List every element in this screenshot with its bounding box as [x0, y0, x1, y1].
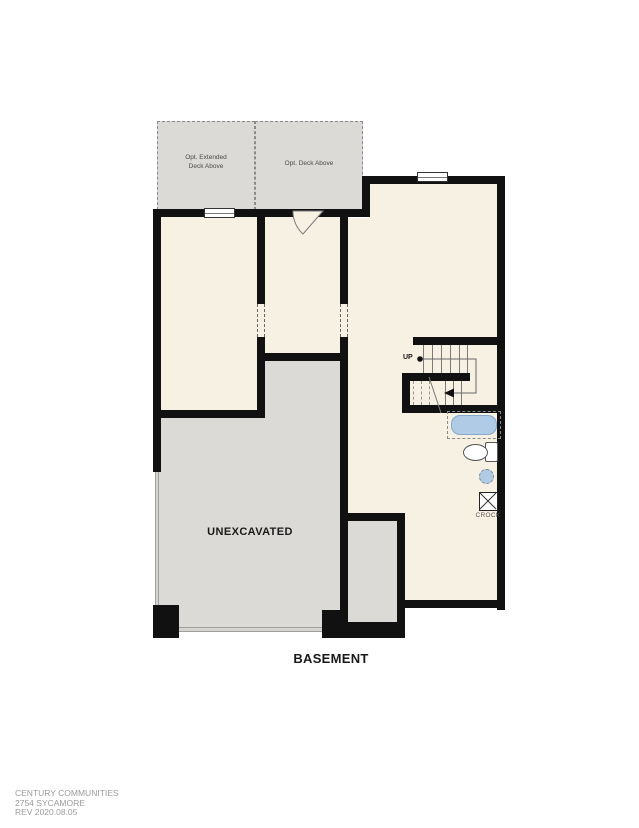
wall: [153, 209, 370, 217]
tub-fixture: [451, 415, 497, 435]
stair-tread: [432, 345, 433, 373]
stair-tread-dashed: [429, 381, 430, 405]
window-symbol: [204, 208, 235, 218]
wall: [497, 176, 505, 610]
footer-revision: REV 2020.08.05: [15, 808, 119, 818]
basement-room-top: [368, 183, 498, 219]
stair-tread: [423, 345, 424, 373]
basement-room-lower: [404, 520, 497, 601]
wall: [153, 605, 179, 638]
deck-extended-label-line2: Deck Above: [189, 163, 224, 170]
wall-opening: [257, 304, 265, 337]
foundation-line-left: [155, 472, 159, 605]
stair-tread: [441, 345, 442, 373]
sink-rough-in-fixture: [479, 469, 494, 484]
wall: [400, 600, 505, 608]
unexcavated-small-area: [348, 520, 397, 624]
room-left: [160, 216, 257, 412]
room-middle: [265, 216, 340, 355]
stair-tread-dashed: [413, 381, 414, 405]
wall: [257, 353, 348, 361]
stair-tread: [450, 345, 451, 373]
wall: [340, 217, 348, 304]
stair-tread: [461, 381, 462, 405]
page-title: BASEMENT: [271, 651, 391, 666]
stair-tread: [467, 345, 468, 373]
footer: CENTURY COMMUNITIES 2754 SYCAMORE REV 20…: [15, 789, 119, 818]
stair-tread-dashed: [421, 381, 422, 405]
crock-symbol: [479, 492, 498, 511]
wall-opening: [340, 304, 348, 337]
floor-plan-page: Opt. Extended Deck Above Opt. Deck Above: [0, 0, 639, 828]
stair-tread: [459, 345, 460, 373]
wall: [340, 337, 348, 630]
deck-label: Opt. Deck Above: [255, 160, 363, 169]
wall: [397, 513, 405, 638]
wall: [153, 209, 161, 472]
wall: [257, 337, 265, 418]
wall: [413, 337, 505, 345]
deck-extended-label: Opt. Extended Deck Above: [157, 154, 255, 171]
crock-label: CROCK: [467, 512, 509, 519]
unexcavated-area: [158, 418, 340, 630]
foundation-line-bottom: [179, 627, 322, 632]
wall: [345, 622, 405, 638]
window-symbol: [417, 172, 448, 182]
stair-tread: [445, 381, 446, 405]
wall: [402, 373, 470, 381]
deck-extended-label-line1: Opt. Extended: [185, 154, 227, 161]
unexcavated-label: UNEXCAVATED: [160, 526, 340, 538]
wall: [340, 513, 405, 521]
stair-tread: [453, 381, 454, 405]
wall: [257, 217, 265, 304]
toilet-fixture-bowl: [463, 444, 488, 461]
unexcavated-notch: [265, 360, 340, 420]
up-label: UP: [403, 354, 420, 361]
wall: [153, 410, 265, 418]
